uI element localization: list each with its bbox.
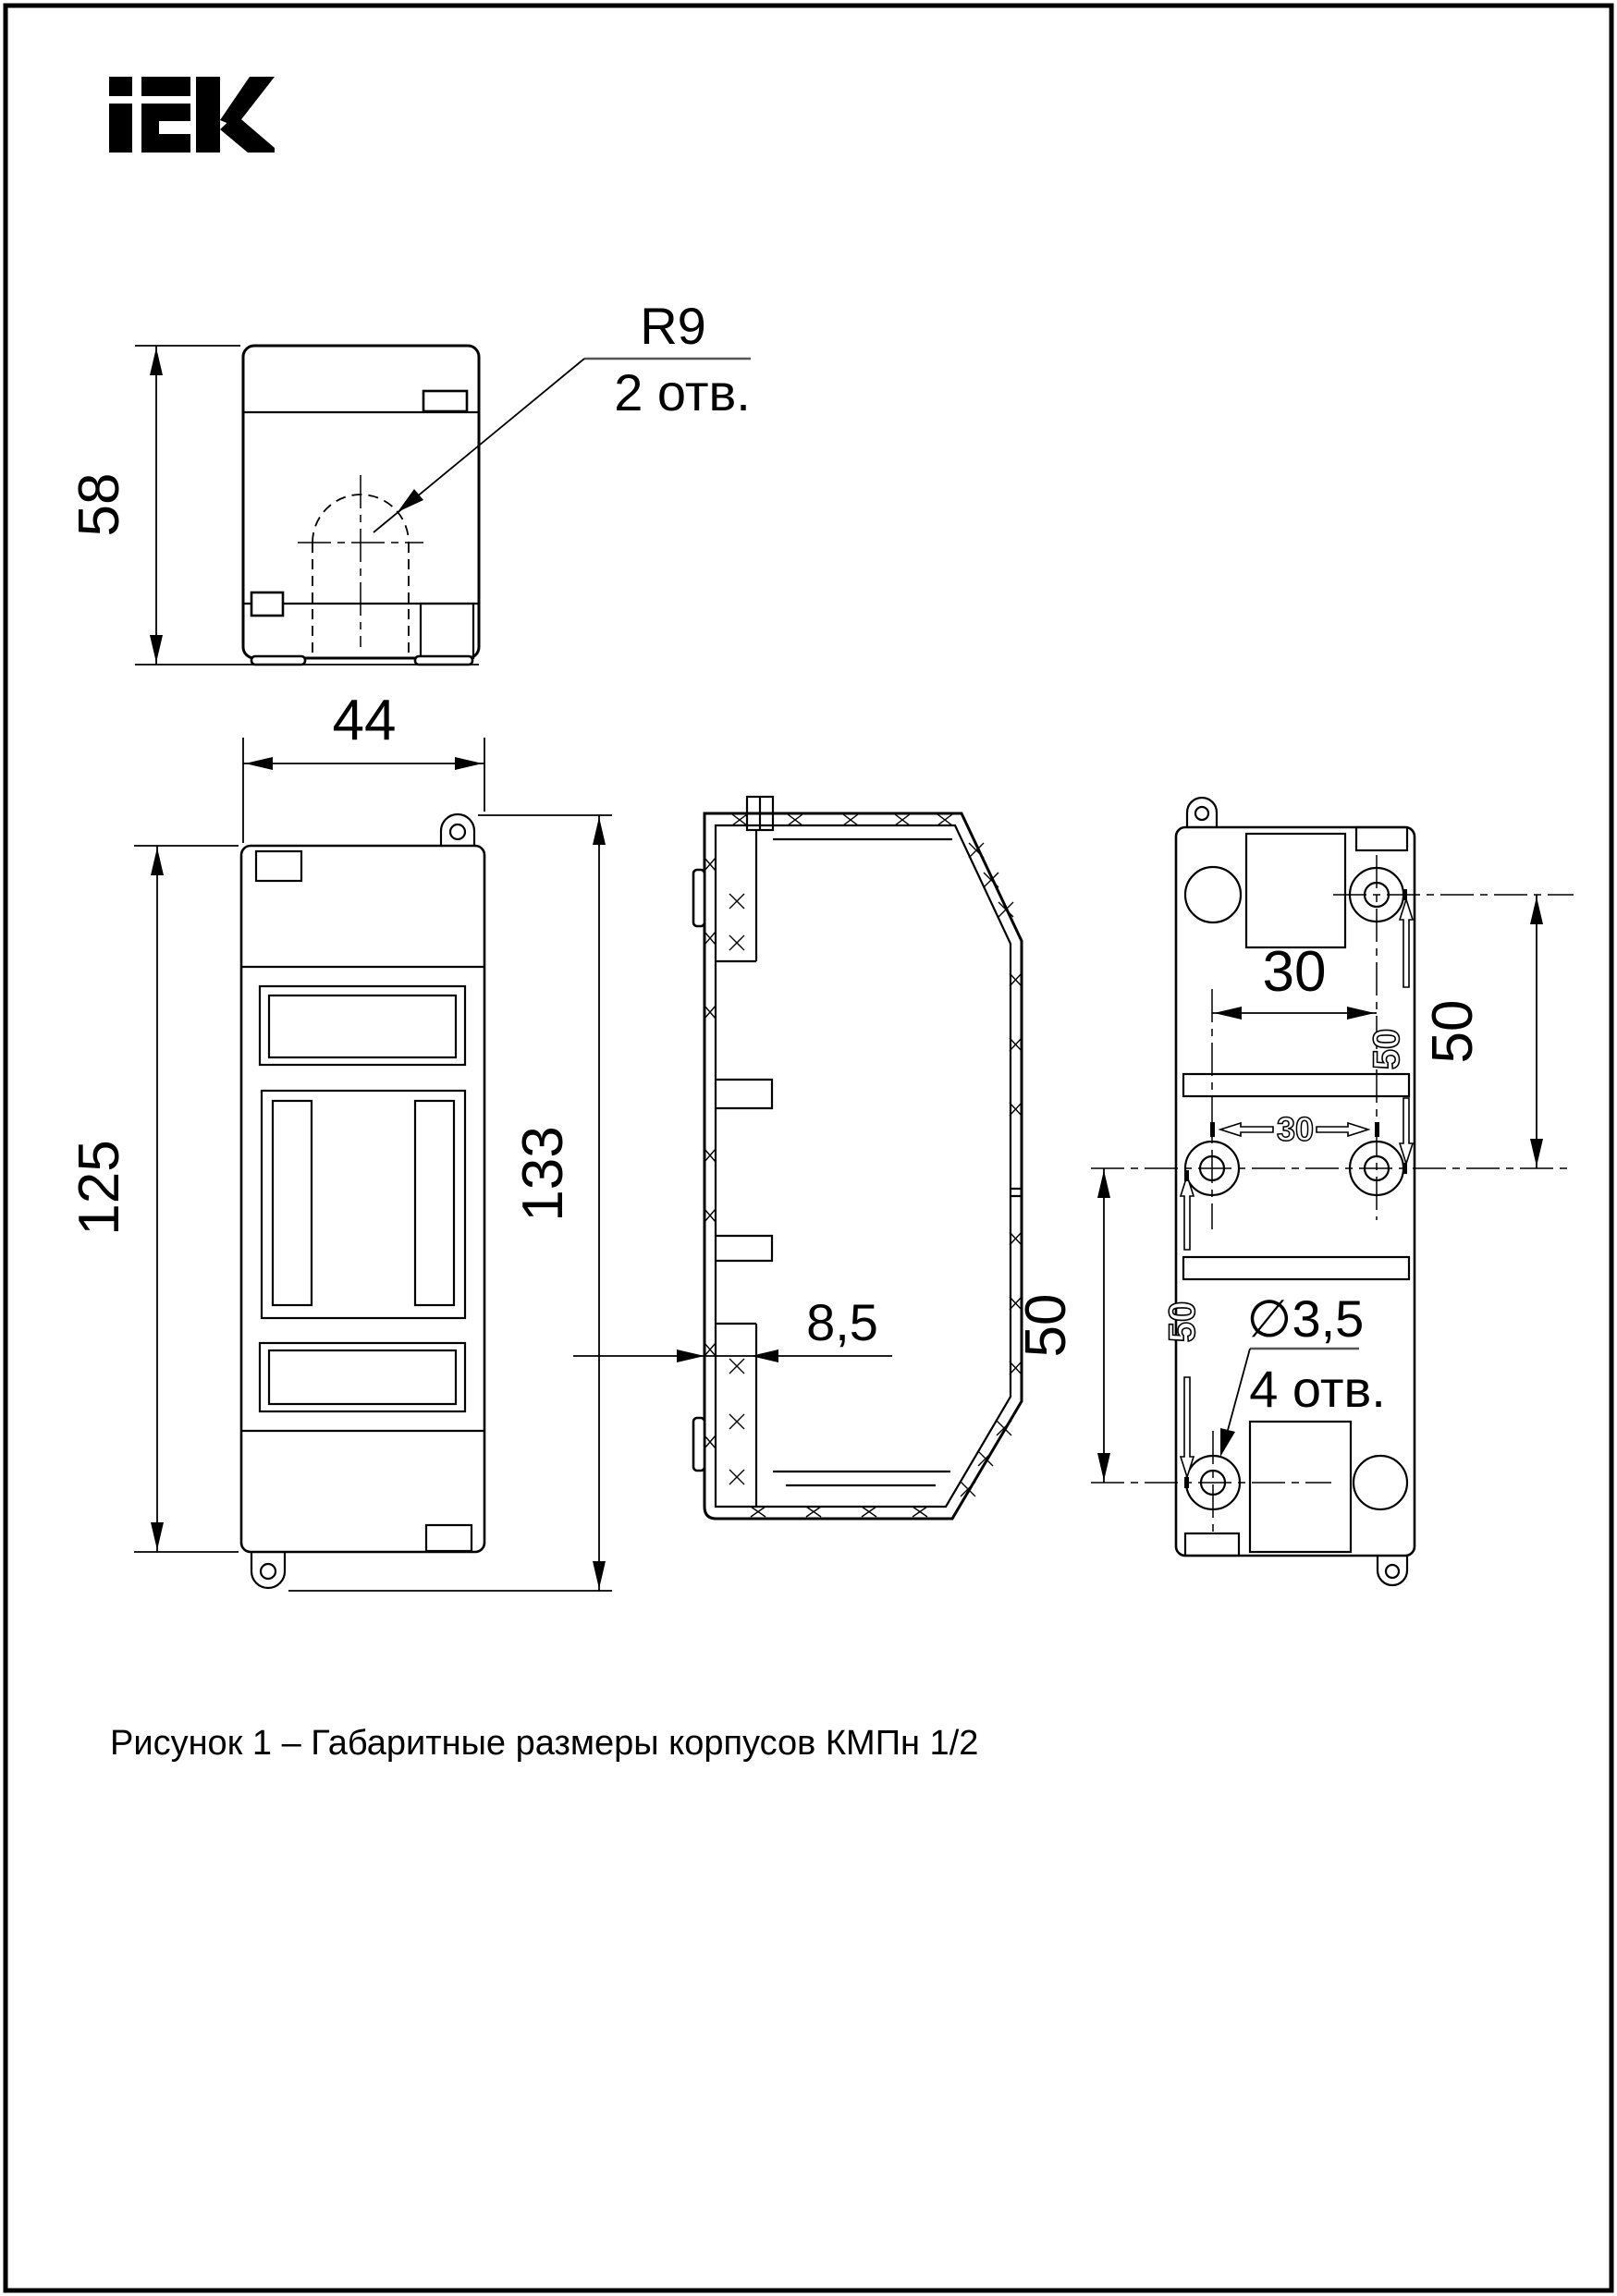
- dim-front-width: 44: [333, 689, 397, 752]
- side-hatch-topdiag: [969, 843, 1013, 917]
- front-ear-bottom: [251, 1552, 285, 1588]
- dim50r-arrow-bottom: [1530, 1139, 1543, 1166]
- logo-e-top: [141, 77, 190, 96]
- dim85-arrow-left: [677, 1350, 704, 1362]
- back-ear-bottom: [1378, 1556, 1407, 1585]
- back-view: 50 50 30 30 50 50 ∅3,5 4 отв.: [1014, 798, 1574, 1585]
- note-r9: R9: [640, 297, 706, 355]
- top-view-latch-slot-left: [251, 592, 283, 616]
- logo-i-dot: [109, 77, 132, 96]
- front-view: 44 125 133: [67, 689, 612, 1591]
- molded-50-upper: 50: [1366, 1029, 1407, 1070]
- side-hatch-bottom: [751, 1507, 927, 1517]
- dim-top-height: 58: [67, 473, 131, 537]
- side-hinge-lower: [693, 1418, 704, 1471]
- dim58-arrow-bottom: [150, 635, 163, 663]
- dim133-arrow-top: [593, 817, 606, 845]
- side-hatch-left: [704, 858, 716, 1448]
- iek-logo: [109, 77, 275, 153]
- note-2otv: 2 отв.: [614, 363, 751, 421]
- front-view-body: [241, 846, 484, 1552]
- dim44-arrow-right: [455, 757, 483, 770]
- dim50l-arrow-top: [1097, 1170, 1110, 1198]
- logo-e-slot: [159, 121, 190, 134]
- dim125-arrow-bottom: [151, 1522, 164, 1550]
- molded-30: 30: [1277, 1110, 1314, 1148]
- dim85-arrow-right: [751, 1350, 778, 1362]
- back-ear-top-hole: [1195, 807, 1208, 820]
- side-hatch-top: [732, 814, 952, 825]
- top-view-foot-left: [251, 656, 305, 665]
- dim-front-body-height: 125: [67, 1140, 131, 1235]
- technical-drawing: 58 R9 2 отв. 44: [0, 0, 1617, 2296]
- side-clip-upper: [716, 1080, 772, 1108]
- top-view: 58 R9 2 отв.: [67, 297, 751, 665]
- note-diameter: ∅3,5: [1247, 1289, 1365, 1348]
- figure-caption: Рисунок 1 – Габаритные размеры корпусов …: [110, 1724, 978, 1763]
- logo-k-upper-arm: [220, 77, 275, 127]
- side-clip-lower: [716, 1236, 772, 1261]
- dim50r-arrow-top: [1530, 897, 1543, 924]
- side-view: 8,5: [573, 797, 1022, 1519]
- front-ear-bottom-hole: [261, 1564, 276, 1579]
- front-ear-top-hole: [450, 824, 465, 839]
- dim-side-thickness: 8,5: [806, 1293, 878, 1351]
- top-view-din-latch: [421, 604, 473, 658]
- molded-50-lower: 50: [1162, 1301, 1203, 1343]
- dim-back-spacing-v-left: 50: [1014, 1294, 1078, 1358]
- r9-leader-arrow: [398, 489, 423, 512]
- dim-back-spacing-v-right: 50: [1421, 1000, 1485, 1064]
- dim50l-arrow-bottom: [1097, 1453, 1110, 1481]
- side-outer-contour: [704, 813, 1022, 1519]
- logo-k-bar: [196, 77, 220, 153]
- dim58-arrow-top: [150, 348, 163, 375]
- note-4otv: 4 отв.: [1249, 1360, 1386, 1418]
- front-ear-top: [441, 814, 474, 846]
- top-view-latch-slot-right: [423, 391, 467, 411]
- dim125-arrow-top: [151, 848, 164, 875]
- drawing-page: 58 R9 2 отв. 44: [0, 0, 1617, 2296]
- dim133-arrow-bottom: [593, 1561, 606, 1589]
- dim-back-hole-spacing-h: 30: [1263, 940, 1327, 1004]
- back-ear-top: [1187, 798, 1217, 827]
- top-view-foot-right: [415, 656, 472, 665]
- side-hatch-blocks: [729, 894, 744, 1484]
- dim-front-overall-height: 133: [511, 1126, 575, 1221]
- dim44-arrow-left: [245, 757, 273, 770]
- logo-i-body: [109, 104, 132, 153]
- side-hinge-upper: [693, 870, 704, 926]
- side-inner-contour: [716, 825, 1011, 1507]
- back-ear-bottom-hole: [1386, 1565, 1399, 1578]
